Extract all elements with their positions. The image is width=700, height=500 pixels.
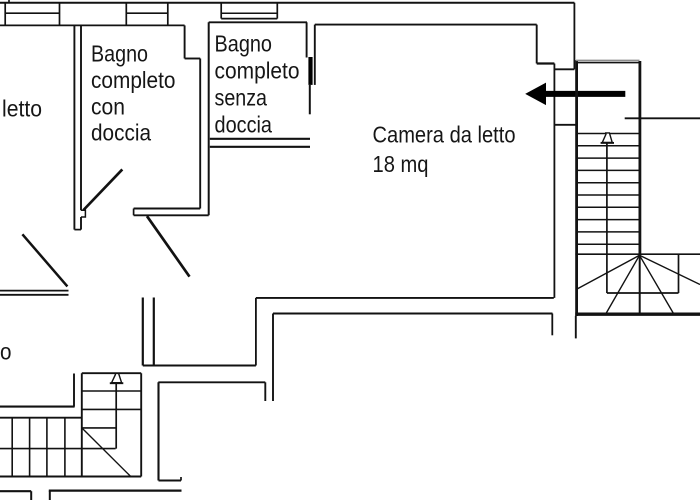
svg-text:letto: letto bbox=[2, 96, 42, 122]
svg-text:con: con bbox=[91, 94, 125, 120]
svg-text:Bagno: Bagno bbox=[91, 41, 148, 67]
svg-text:doccia: doccia bbox=[91, 120, 151, 146]
svg-text:18 mq: 18 mq bbox=[373, 151, 429, 177]
svg-text:completo: completo bbox=[215, 58, 300, 84]
svg-text:completo: completo bbox=[91, 67, 176, 93]
svg-text:Camera da letto: Camera da letto bbox=[373, 122, 516, 148]
svg-text:Bagno: Bagno bbox=[215, 31, 273, 57]
svg-text:doccia: doccia bbox=[215, 112, 273, 138]
svg-text:o: o bbox=[0, 339, 12, 365]
svg-text:senza: senza bbox=[215, 85, 268, 111]
